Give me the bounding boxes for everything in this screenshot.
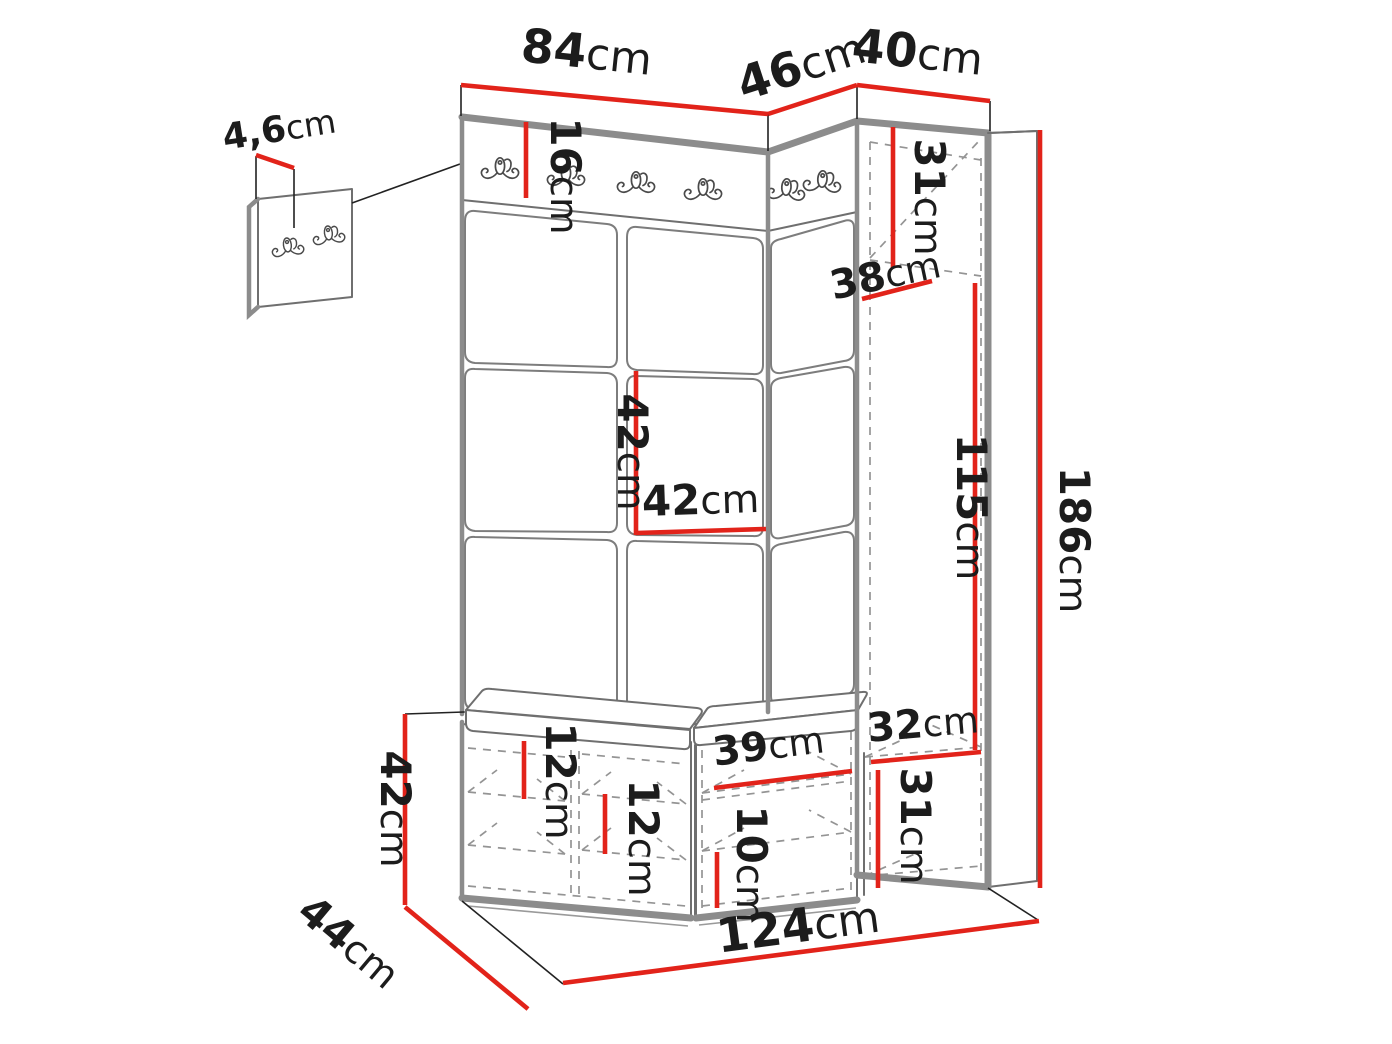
dimension-label-115cm: 115cm: [947, 434, 996, 581]
dimension-label-40cm: 40cm: [849, 18, 985, 86]
dimension-label-186cm: 186cm: [1050, 467, 1099, 614]
dimension-label-84cm: 84cm: [518, 18, 654, 86]
dimension-label-31cm-bottom: 31cm: [891, 767, 940, 884]
dim-line-4-6: [256, 155, 294, 168]
dimension-label-44cm: 44cm: [289, 885, 410, 998]
dim-line-84: [461, 85, 768, 114]
dimension-label-4-6cm: 4,6cm: [220, 100, 339, 158]
wall-hook-panel: [249, 164, 460, 315]
dim-line-40: [857, 85, 990, 101]
dimension-label-31cm-top: 31cm: [905, 138, 954, 255]
hallway-furniture-dimension-diagram: 84cm 46cm 40cm 4,6cm 16cm 31cm 38cm 42cm…: [0, 0, 1392, 1044]
leader-line: [352, 164, 460, 203]
dim-line-44: [405, 907, 528, 1009]
upholstered-panel-tiles: [465, 211, 854, 726]
dimension-label-42cm-left: 42cm: [371, 750, 420, 867]
dimension-label-16cm: 16cm: [541, 117, 590, 234]
dimension-label-12cm-top: 12cm: [536, 722, 585, 839]
dimension-label-12cm-bottom: 12cm: [619, 779, 668, 896]
dimension-label-42cm-horizontal: 42cm: [641, 473, 760, 526]
